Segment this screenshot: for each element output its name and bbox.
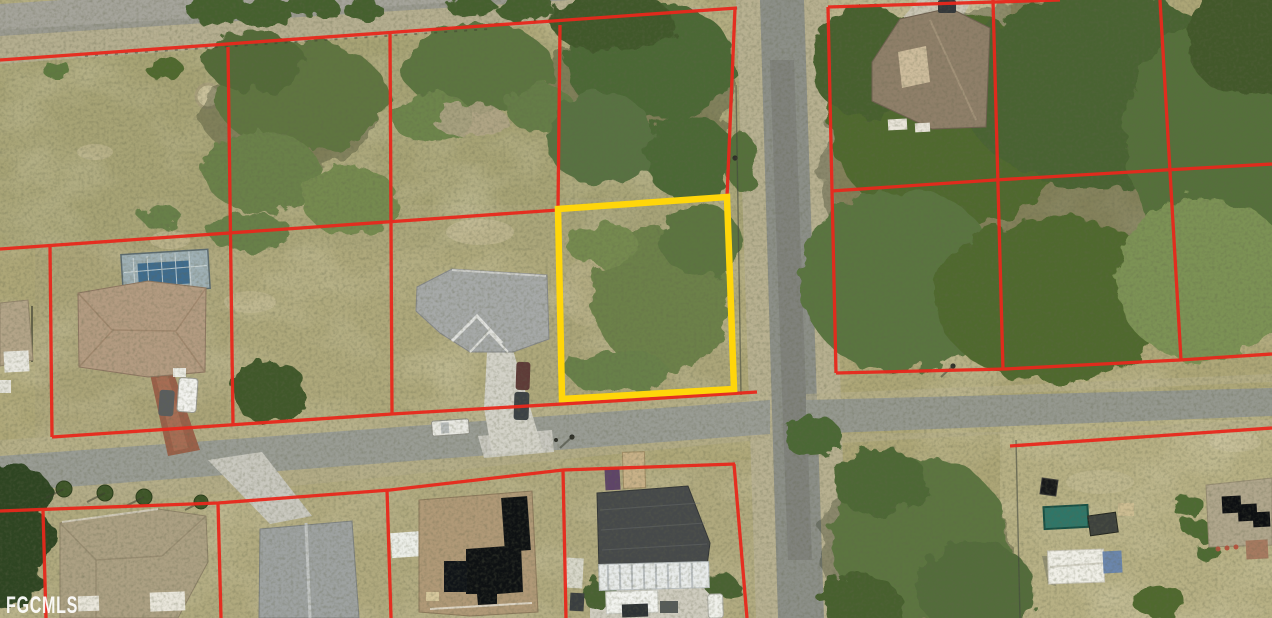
parcel-line-vertical [558, 25, 560, 210]
watermark-text: FGCMLS [6, 592, 78, 618]
parcel-line-vertical [390, 31, 392, 414]
aerial-photo-canvas: FGCMLS [0, 0, 1272, 618]
aerial-parcel-photo: FGCMLS [0, 0, 1272, 618]
parcel-line-vertical [50, 246, 52, 437]
photo-grain [0, 0, 1272, 618]
